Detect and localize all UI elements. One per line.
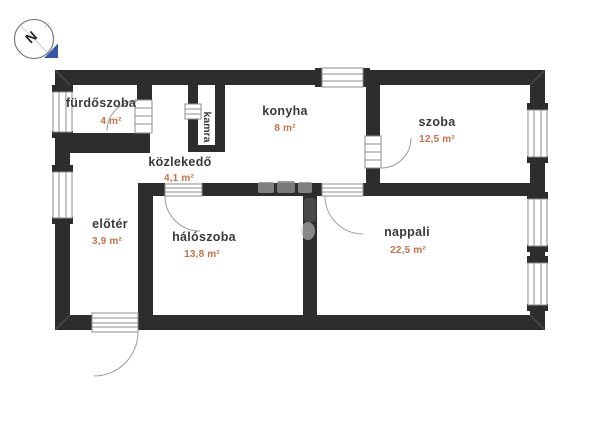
room-label-konyha: konyha [262, 104, 308, 118]
room-label-kamra: kamra [201, 112, 213, 143]
room-label-haloszoba: hálószoba [172, 230, 237, 244]
floor-plan-canvas: N [0, 0, 600, 435]
room-door-icon [365, 136, 411, 168]
living-room-window-2-icon [528, 263, 547, 305]
room-area-szoba: 12,5 m² [419, 134, 455, 145]
compass-letter: N [22, 28, 40, 47]
compass-north-icon: N [15, 20, 59, 59]
hallway-living-room-door-icon [322, 184, 363, 234]
room-area-kozlekedo: 4,1 m² [164, 173, 195, 184]
room-label-kozlekedo: közlekedő [148, 155, 211, 169]
watermark-logo [258, 181, 316, 240]
room-window-icon [528, 110, 547, 157]
interior-walls [55, 85, 530, 330]
hallway-bedroom-door-icon [165, 184, 202, 231]
pantry-door-icon [185, 104, 201, 119]
room-labels: fürdőszoba 4 m² konyha 8 m² szoba 12,5 m… [66, 96, 456, 260]
room-area-furdoszoba: 4 m² [100, 116, 122, 127]
room-area-nappali: 22,5 m² [390, 245, 426, 256]
room-label-szoba: szoba [419, 115, 457, 129]
kitchen-window-icon [322, 68, 363, 87]
room-label-nappali: nappali [384, 225, 430, 239]
room-area-haloszoba: 13,8 m² [184, 249, 220, 260]
living-room-window-1-icon [528, 199, 547, 246]
foyer-window-icon [53, 172, 72, 218]
room-area-konyha: 8 m² [274, 123, 296, 134]
room-area-eloter: 3,9 m² [92, 236, 123, 247]
room-label-furdoszoba: fürdőszoba [66, 96, 137, 110]
room-label-eloter: előtér [92, 217, 128, 231]
floor-plan-page: N [0, 0, 600, 435]
entrance-door-icon [92, 313, 138, 376]
